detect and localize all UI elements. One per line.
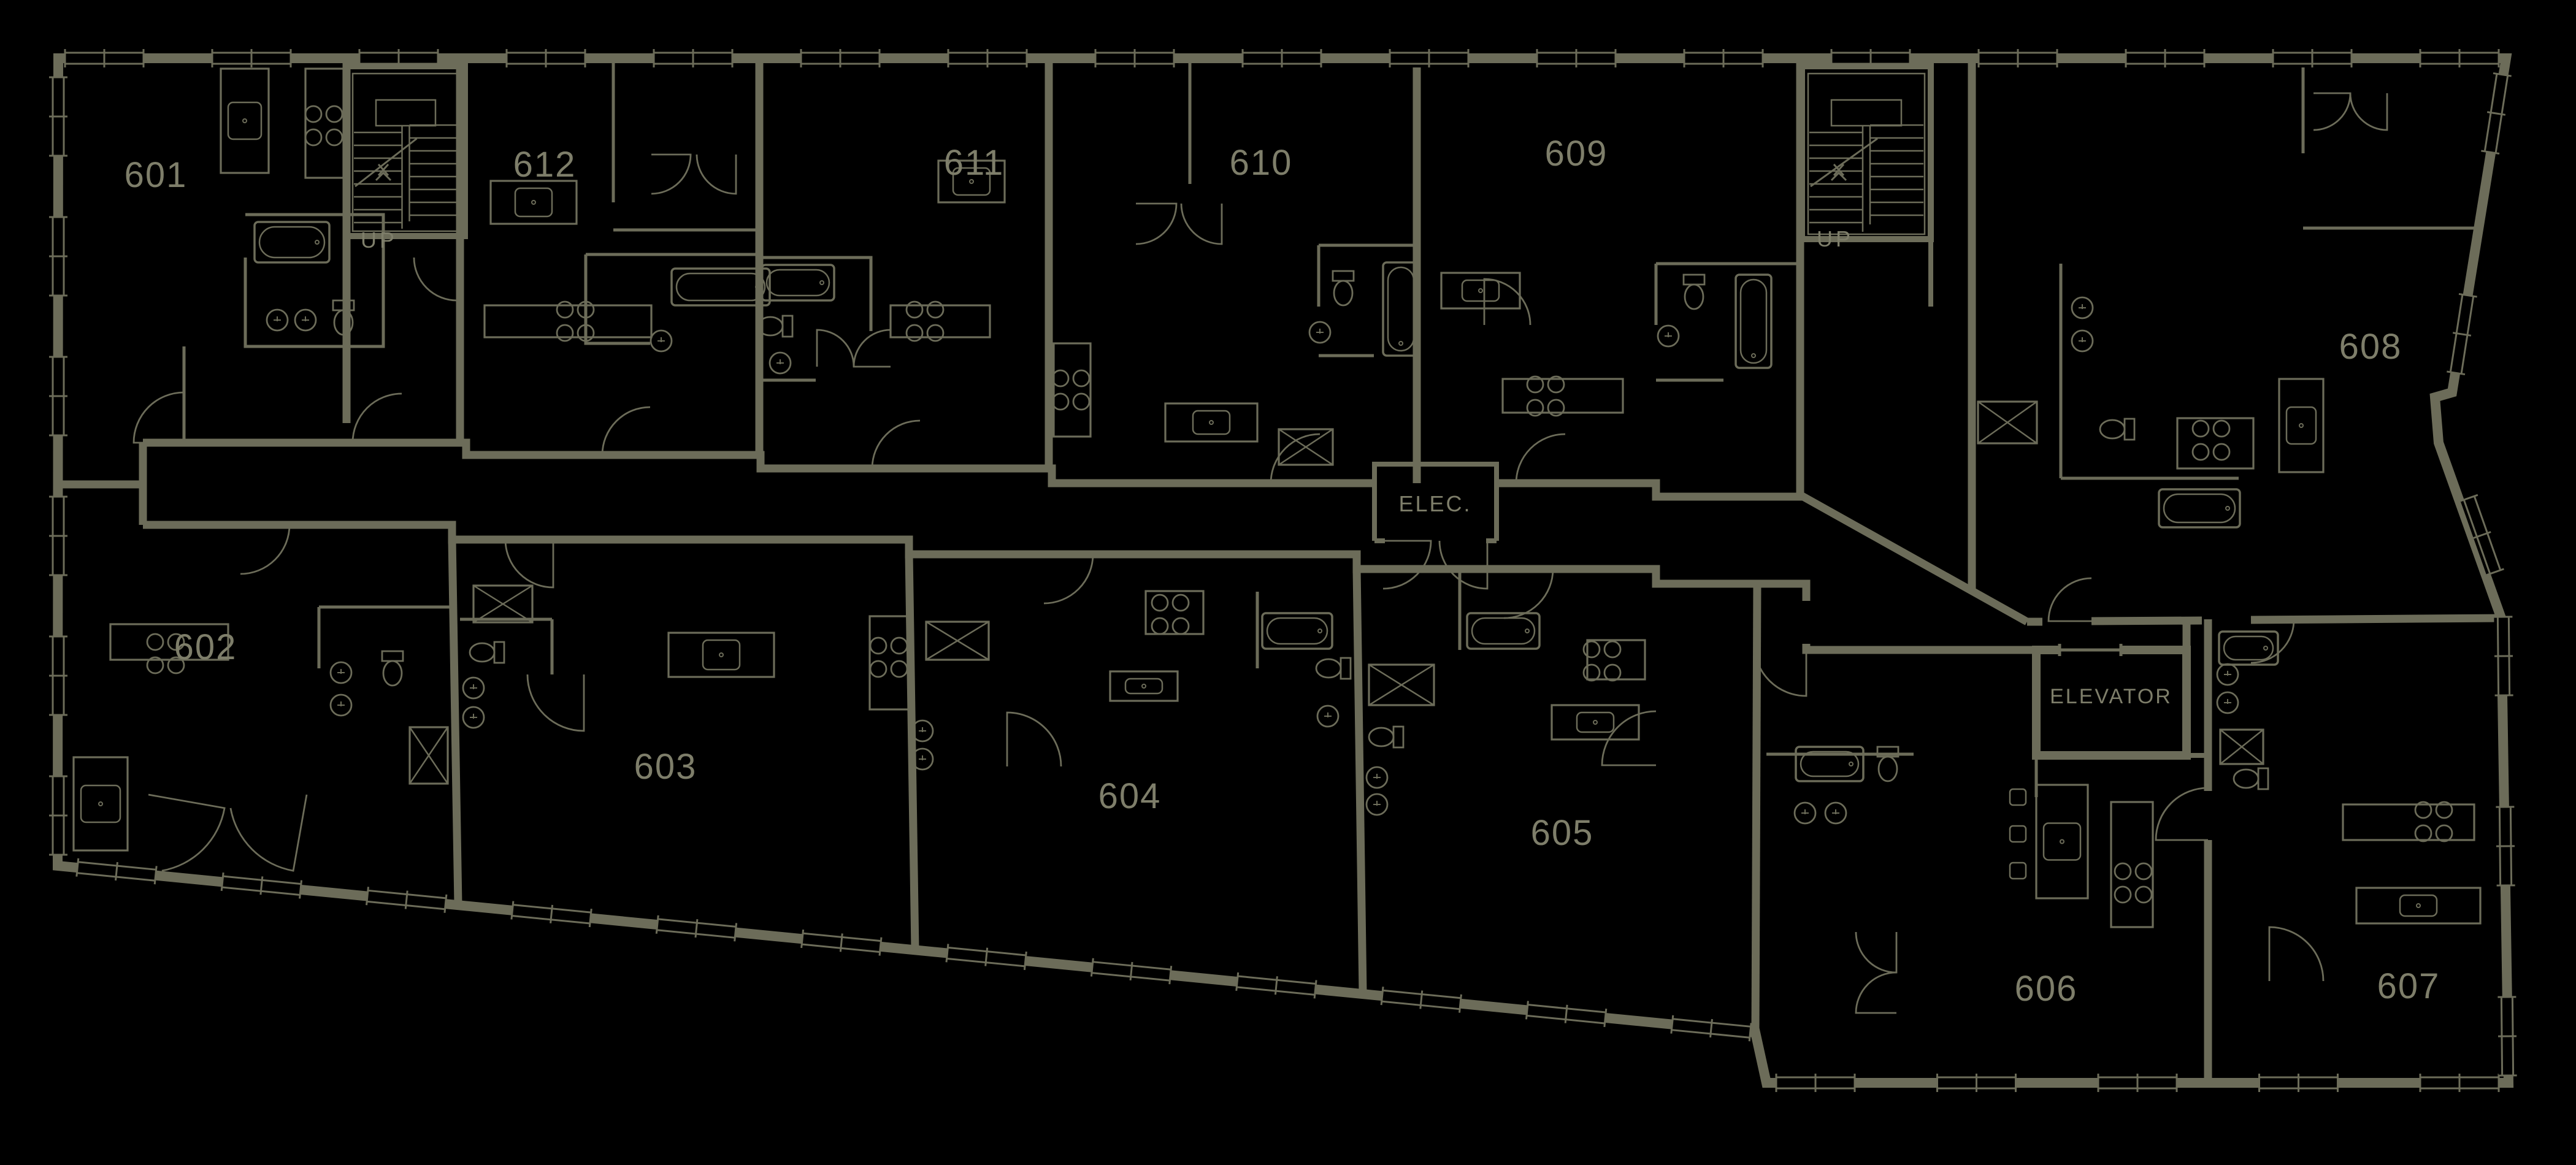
- unit-label-609: 609: [1545, 134, 1608, 174]
- wardrobe-symbol: [926, 622, 989, 660]
- door-swing-symbol: [602, 407, 650, 455]
- staircase-symbol: [1802, 66, 1931, 239]
- window-symbol: [2497, 997, 2517, 1075]
- toilet-symbol: [470, 642, 504, 663]
- stove-symbol: [907, 302, 943, 341]
- corridor-south-wall: [143, 525, 2036, 650]
- window-symbol: [49, 497, 67, 575]
- window-symbol: [49, 636, 67, 715]
- door-swing-symbol: [231, 795, 307, 871]
- door-swing-symbol: [1181, 204, 1222, 244]
- stove-symbol: [305, 106, 342, 145]
- kitchen-counter-symbol: [891, 305, 990, 337]
- kitchen-counter-symbol: [485, 305, 651, 337]
- kitchen-counter-symbol: [305, 69, 343, 178]
- door-swing-symbol: [527, 674, 584, 731]
- sink-symbol: [2217, 692, 2238, 713]
- door-swing-symbol: [414, 258, 457, 300]
- toilet-symbol: [1684, 275, 1704, 309]
- window-symbol: [2481, 73, 2511, 153]
- window-symbol: [1684, 49, 1763, 67]
- window-symbol: [507, 49, 585, 67]
- window-symbol: [77, 858, 156, 884]
- window-symbol: [65, 49, 144, 67]
- door-swing-symbol: [353, 394, 402, 443]
- window-symbol: [2496, 807, 2515, 885]
- unit-label-601: 601: [125, 155, 188, 195]
- window-symbol: [948, 49, 1027, 67]
- staircase-symbol: [347, 66, 465, 236]
- toilet-symbol: [2234, 768, 2268, 789]
- window-symbol: [1979, 49, 2057, 67]
- kitchen-island-symbol: [2356, 888, 2480, 923]
- kitchen-counter-symbol: [1587, 640, 1645, 679]
- door-swing-symbol: [1439, 541, 1487, 589]
- toilet-symbol: [1369, 727, 1403, 747]
- labels: 601 612 611 610 609 608 602 603 604 605 …: [125, 134, 2440, 1009]
- stove-symbol: [870, 638, 907, 677]
- unit-label-605: 605: [1531, 813, 1594, 853]
- window-symbol: [49, 217, 67, 296]
- interior-walls: [58, 58, 2501, 1083]
- wardrobe-symbol: [1369, 665, 1434, 705]
- stove-symbol: [2115, 863, 2152, 903]
- sink-symbol: [463, 707, 484, 728]
- bathtub-symbol: [672, 269, 770, 305]
- electrical-room-label: ELEC.: [1398, 491, 1471, 516]
- stair-up-label-right: UP: [1817, 226, 1853, 251]
- unit-label-612: 612: [513, 145, 577, 185]
- door-swing-symbol: [2049, 578, 2091, 621]
- toilet-symbol: [382, 651, 403, 686]
- unit-label-606: 606: [2015, 969, 2078, 1009]
- toilet-symbol: [1316, 658, 1351, 679]
- window-symbol: [221, 873, 301, 898]
- bathtub-symbol: [255, 222, 329, 262]
- window-symbol: [2420, 1074, 2499, 1092]
- window-symbol: [801, 49, 880, 67]
- floor-plan-page: 601 612 611 610 609 608 602 603 604 605 …: [0, 0, 2576, 1165]
- window-symbol: [946, 944, 1026, 969]
- toilet-symbol: [2100, 419, 2134, 440]
- toilet-symbol: [1333, 271, 1354, 305]
- door-swing-symbol: [1602, 711, 1656, 765]
- sink-symbol: [770, 353, 791, 373]
- sink-symbol: [1367, 767, 1387, 788]
- door-swing-symbol: [854, 330, 891, 367]
- window-symbol: [2447, 294, 2477, 374]
- door-swing-symbol: [651, 155, 691, 194]
- door-swing-symbol: [697, 155, 736, 194]
- sink-symbol: [331, 662, 351, 683]
- wardrobe-symbol: [2220, 730, 2263, 764]
- kitchen-counter-symbol: [2177, 418, 2253, 468]
- unit-label-603: 603: [634, 747, 697, 787]
- kitchen-island-symbol: [2036, 785, 2088, 898]
- wardrobe-symbol: [1978, 402, 2037, 443]
- window-symbol: [2273, 49, 2352, 67]
- window-symbol: [656, 915, 736, 941]
- sink-symbol: [2072, 297, 2093, 318]
- bathtub-symbol: [1383, 262, 1419, 356]
- sink-symbol: [1825, 803, 1846, 823]
- sink-symbol: [463, 678, 484, 698]
- corridor-north-wall: [143, 443, 2027, 622]
- window-symbol: [1390, 49, 1468, 67]
- door-swing-symbol: [1007, 712, 1061, 766]
- stove-symbol: [557, 302, 594, 341]
- kitchen-island-symbol: [1441, 273, 1520, 308]
- building-outline: [58, 58, 2509, 1083]
- window-symbol: [2260, 1074, 2338, 1092]
- bathtub-symbol: [762, 265, 834, 300]
- kitchen-island-symbol: [2279, 379, 2323, 472]
- window-symbol: [2420, 49, 2499, 67]
- door-swing-symbol: [2350, 93, 2387, 130]
- door-swing-symbol: [872, 421, 920, 468]
- kitchen-counter-symbol: [1054, 343, 1091, 437]
- stool-symbol: [2010, 863, 2026, 879]
- floor-plan-canvas: 601 612 611 610 609 608 602 603 604 605 …: [0, 0, 2576, 1165]
- sink-symbol: [1309, 322, 1330, 343]
- window-symbol: [49, 77, 67, 156]
- door-swing-symbol: [1856, 932, 1896, 972]
- elevator-label: ELEVATOR: [2050, 685, 2172, 708]
- wall-divider: [452, 540, 458, 904]
- sink-symbol: [651, 330, 672, 351]
- sink-symbol: [2217, 664, 2238, 685]
- stair-up-label-left: UP: [361, 227, 397, 253]
- window-symbol: [212, 49, 291, 67]
- window-symbol: [1243, 49, 1321, 67]
- door-swing-symbol: [1136, 204, 1176, 244]
- door-swing-symbol: [1516, 434, 1565, 483]
- door-swing-symbol: [2251, 620, 2294, 663]
- window-symbol: [1091, 958, 1171, 984]
- unit-label-604: 604: [1098, 776, 1162, 816]
- door-swing-symbol: [1856, 972, 1896, 1013]
- window-symbol: [1776, 1074, 1855, 1092]
- window-symbol: [2126, 49, 2204, 67]
- window-symbol: [1537, 49, 1616, 67]
- wall-divider: [1357, 569, 1363, 993]
- bathtub-symbol: [1736, 275, 1771, 368]
- plan-symbols: [49, 49, 2517, 1092]
- bathtub-symbol: [1796, 747, 1863, 781]
- stove-symbol: [1052, 370, 1089, 410]
- stove-symbol: [1584, 641, 1620, 681]
- kitchen-island-symbol: [491, 181, 577, 224]
- door-swing-symbol: [817, 330, 854, 367]
- sink-symbol: [1658, 326, 1679, 346]
- kitchen-island-symbol: [1552, 705, 1639, 739]
- door-swing-symbol: [240, 525, 289, 574]
- sink-symbol: [331, 695, 351, 716]
- door-swing-symbol: [2313, 93, 2350, 130]
- stove-symbol: [2415, 802, 2452, 841]
- kitchen-island-symbol: [221, 69, 269, 173]
- door-swing-symbol: [1484, 279, 1530, 325]
- unit-label-610: 610: [1230, 143, 1293, 183]
- door-swing-symbol: [1383, 541, 1431, 589]
- sink-symbol: [295, 310, 316, 330]
- window-symbol: [49, 776, 67, 855]
- sink-symbol: [2072, 330, 2093, 351]
- stove-symbol: [1527, 376, 1564, 416]
- exterior-walls: [58, 58, 2509, 1083]
- bathtub-symbol: [2159, 489, 2240, 527]
- wall-divider: [1755, 584, 1757, 1033]
- unit-label-611: 611: [944, 143, 1004, 183]
- door-swing-symbol: [134, 392, 184, 443]
- window-symbol: [1095, 49, 1174, 67]
- door-swing-symbol: [1754, 644, 1806, 696]
- window-symbol: [2098, 1074, 2177, 1092]
- window-symbol: [1381, 987, 1461, 1012]
- kitchen-island-symbol: [1110, 671, 1178, 701]
- window-symbol: [2494, 617, 2513, 695]
- stove-symbol: [1152, 595, 1189, 634]
- bathtub-symbol: [1262, 613, 1332, 649]
- window-symbol: [1526, 1001, 1606, 1027]
- window-symbol: [802, 930, 881, 955]
- window-symbol: [49, 357, 67, 435]
- kitchen-island-symbol: [1165, 403, 1257, 441]
- unit-label-607: 607: [2377, 966, 2440, 1006]
- kitchen-counter-symbol: [2343, 804, 2474, 840]
- door-swing-symbol: [2269, 927, 2323, 981]
- sink-symbol: [267, 310, 288, 330]
- stool-symbol: [2010, 826, 2026, 842]
- kitchen-island-symbol: [74, 757, 128, 850]
- window-symbol: [512, 901, 591, 927]
- window-symbol: [1938, 1074, 2016, 1092]
- door-swing-symbol: [1044, 554, 1093, 603]
- kitchen-counter-symbol: [1503, 379, 1623, 413]
- window-symbol: [654, 49, 732, 67]
- toilet-symbol: [1877, 747, 1898, 781]
- door-swing-symbol: [148, 795, 224, 871]
- window-symbol: [1236, 972, 1316, 998]
- door-swing-symbol: [1504, 569, 1553, 618]
- sink-symbol: [1367, 794, 1387, 815]
- sink-symbol: [1317, 706, 1338, 727]
- unit-label-602: 602: [174, 627, 237, 667]
- wardrobe-symbol: [410, 727, 448, 784]
- wardrobe-symbol: [473, 586, 532, 622]
- stool-symbol: [2010, 789, 2026, 805]
- window-symbol: [367, 887, 447, 912]
- kitchen-island-symbol: [669, 633, 774, 677]
- door-swing-symbol: [505, 540, 553, 587]
- window-symbol: [1671, 1015, 1751, 1041]
- unit-label-608: 608: [2339, 327, 2402, 367]
- door-swing-symbol: [2156, 788, 2208, 840]
- stove-symbol: [2193, 421, 2229, 460]
- sink-symbol: [1795, 803, 1815, 823]
- bathtub-symbol: [1467, 613, 1539, 649]
